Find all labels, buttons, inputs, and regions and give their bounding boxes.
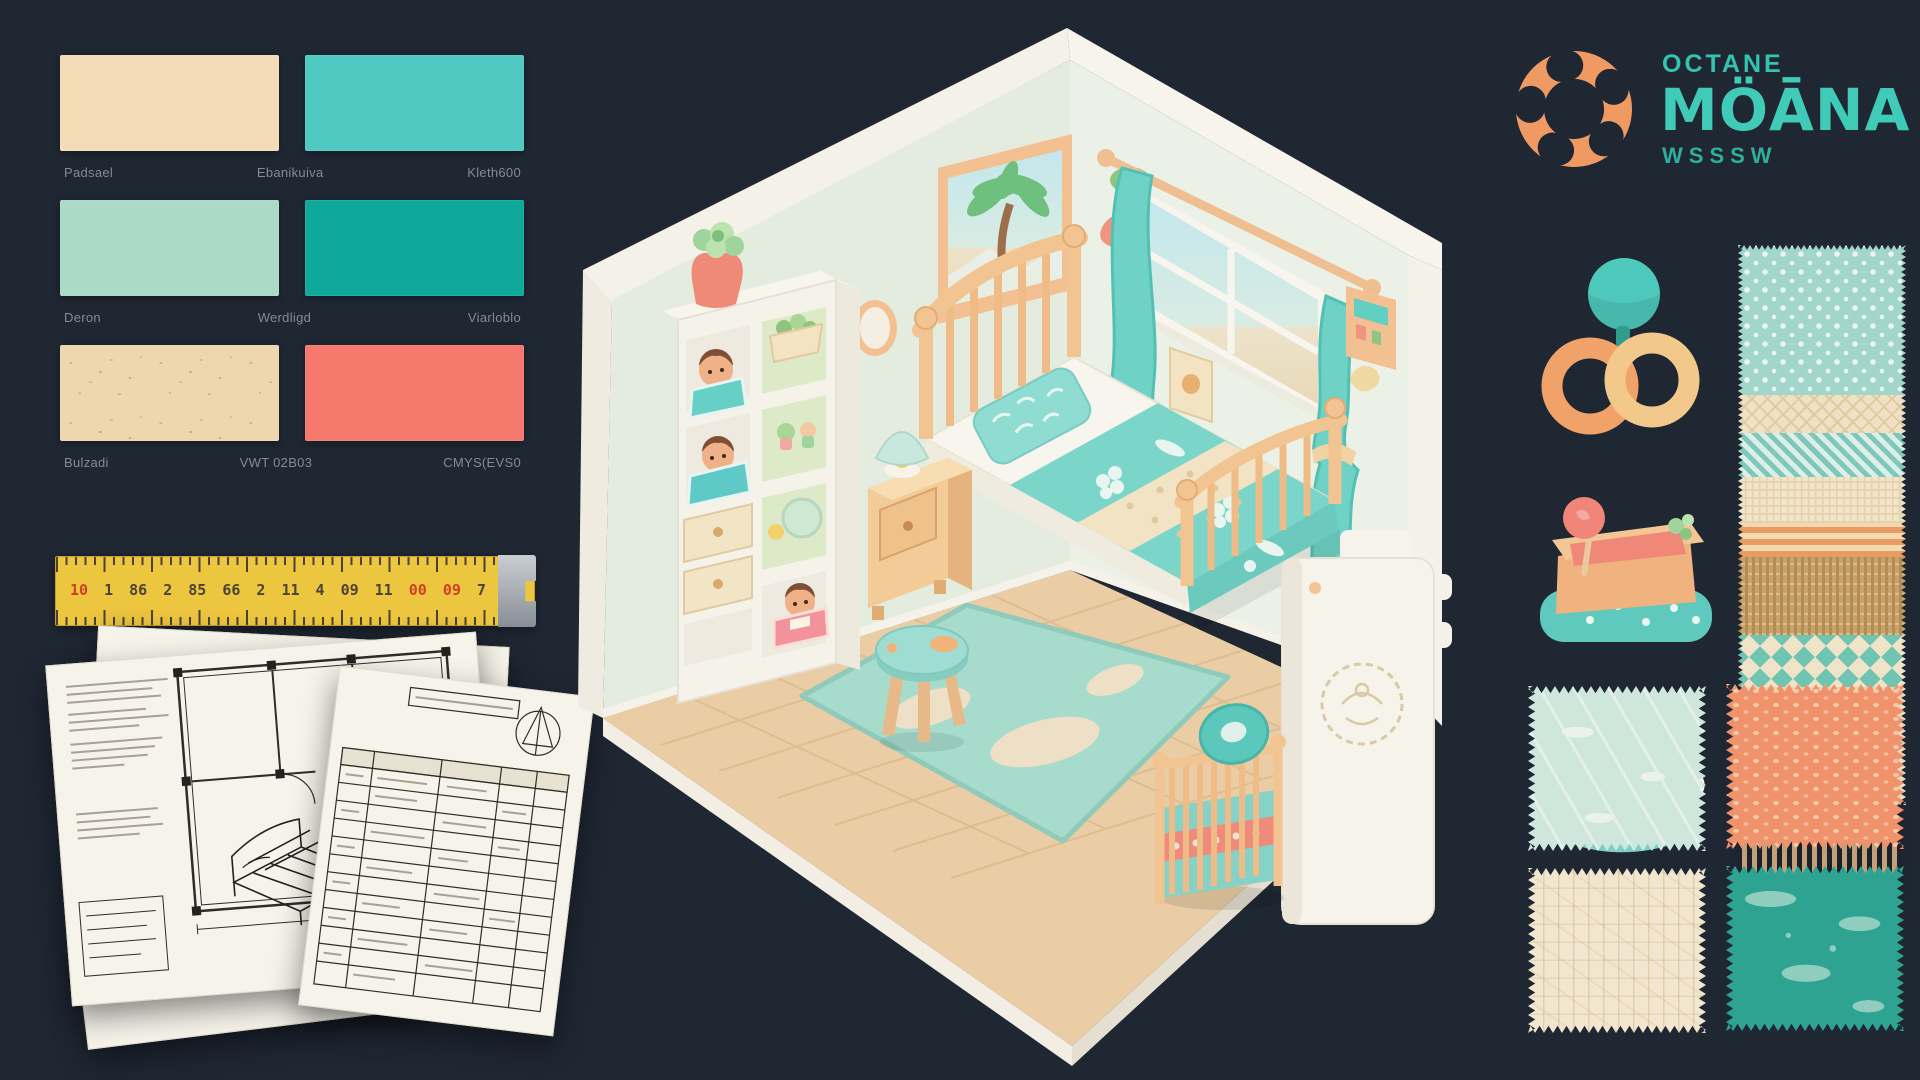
ruler-number: 11: [281, 581, 299, 599]
ruler-metal-end: [498, 555, 536, 627]
logo-top-text: OCTANE: [1662, 52, 1910, 77]
color-swatch: [305, 200, 524, 296]
swatch-label: Padsael: [64, 165, 113, 180]
fabric-swatch-coral-dots: [1726, 684, 1904, 849]
palette-row: BulzadiVWT 02B03CMYS(EVS0: [60, 345, 525, 470]
fabric-band-tan-weave: [1738, 557, 1906, 635]
ruler-number: 2: [256, 581, 265, 599]
measuring-tape: 10186285662114091100097: [55, 556, 535, 626]
swatch-label-row: BulzadiVWT 02B03CMYS(EVS0: [60, 455, 525, 470]
fabric-band-cream-knit: [1738, 477, 1906, 523]
color-swatch: [60, 200, 279, 296]
fabric-swatch-mint-wave: [1528, 686, 1706, 851]
palette-row: PadsaelEbanikuivaKleth600: [60, 55, 525, 180]
ruler-number: 09: [341, 581, 359, 599]
swatch-label: Bulzadi: [64, 455, 109, 470]
wall-plaque: [1170, 348, 1212, 422]
blueprint-sheets: [50, 618, 610, 1058]
ruler-number: 1: [104, 581, 113, 599]
fabric-swatch-teal-leaf: [1726, 866, 1904, 1031]
ruler-number: 11: [375, 581, 393, 599]
swatch-label: Deron: [64, 310, 101, 325]
ruler-number: 85: [188, 581, 206, 599]
swatch-label-row: PadsaelEbanikuivaKleth600: [60, 165, 525, 180]
ruler-numbers: 10186285662114091100097: [70, 581, 486, 599]
swatch-label: Viarloblo: [468, 310, 521, 325]
ruler-number: 7: [477, 581, 486, 599]
fabric-band-teal-check: [1738, 433, 1906, 477]
fabric-band-teal-dots: [1738, 245, 1906, 395]
color-swatch: [305, 55, 524, 151]
dresser-unit: [1282, 530, 1434, 924]
fabric-band-orange-stripe: [1738, 523, 1906, 557]
fabric-band-wave-teal: [1738, 635, 1906, 687]
swatch-label-row: DeronWerdligdViarloblo: [60, 310, 525, 325]
swatch-label: Werdligd: [258, 310, 311, 325]
ruler-ticks-top: [56, 557, 500, 572]
logo-main-text: MÖĀNA: [1660, 81, 1910, 139]
palette-row: DeronWerdligdViarloblo: [60, 200, 525, 325]
fabric-band-cream-diamond: [1738, 395, 1906, 433]
blueprint-table-sheet: [298, 666, 595, 1037]
logo-sub-text: WSSSW: [1662, 145, 1910, 167]
ruler-number: 10: [70, 581, 88, 599]
ruler-number: 66: [222, 581, 240, 599]
color-palette: PadsaelEbanikuivaKleth600DeronWerdligdVi…: [60, 55, 525, 490]
ruler-number: 09: [443, 581, 461, 599]
ruler-number: 00: [409, 581, 427, 599]
swatch-label: VWT 02B03: [240, 455, 313, 470]
isometric-room-render: [570, 18, 1490, 1068]
ring-logo-icon: [1512, 42, 1636, 176]
sandbox-toy-icon: [1528, 478, 1723, 663]
rings-toy-icon: [1540, 250, 1705, 450]
color-swatch: [305, 345, 524, 441]
color-swatch: [60, 55, 279, 151]
swatch-label: Ebanikuiva: [257, 165, 324, 180]
ruler-number: 4: [316, 581, 325, 599]
swatch-label: Kleth600: [467, 165, 521, 180]
ruler-number: 2: [163, 581, 172, 599]
swatch-label: CMYS(EVS0: [443, 455, 521, 470]
spec-table-drawing: [299, 667, 594, 1036]
ruler-number: 86: [129, 581, 147, 599]
fabric-swatch-cream-scribble: [1528, 868, 1706, 1033]
color-swatch: [60, 345, 279, 441]
moodboard-canvas: PadsaelEbanikuivaKleth600DeronWerdligdVi…: [0, 0, 1920, 1080]
brand-logo: OCTANE MÖĀNA WSSSW: [1512, 42, 1910, 176]
